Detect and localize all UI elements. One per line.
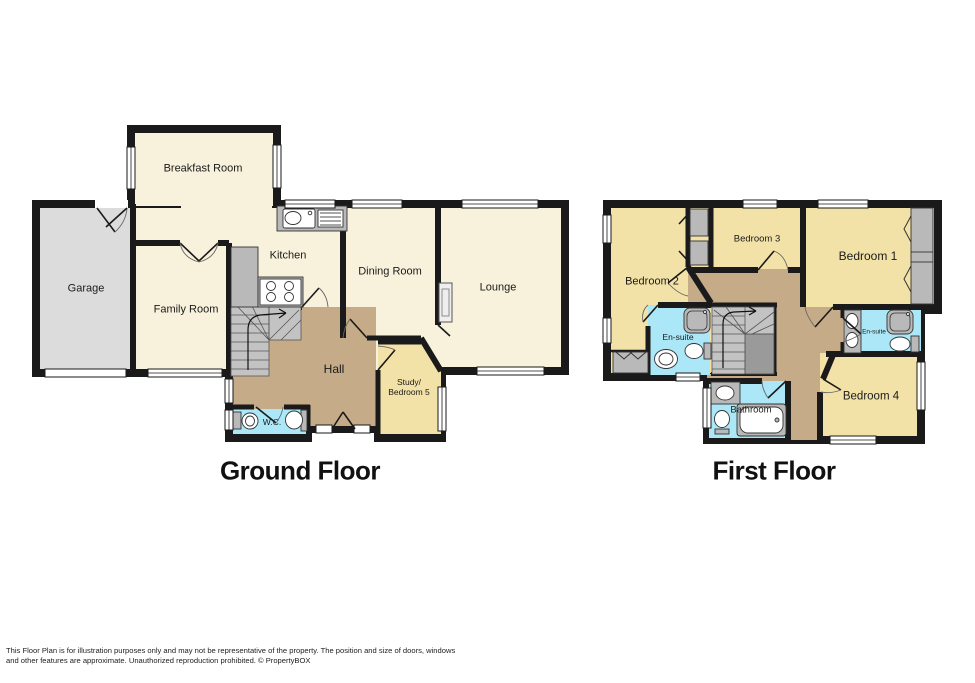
first-stairs <box>712 307 774 374</box>
room-label-garage: Garage <box>68 283 105 296</box>
room-label-hall: Hall <box>324 363 345 377</box>
floorplan-page: Breakfast Room Garage Kitchen Family Roo… <box>0 0 975 683</box>
room-label-bedroom2: Bedroom 2 <box>625 276 679 289</box>
ensuite-left-sink-icon <box>655 350 678 369</box>
garage-door <box>45 369 126 377</box>
bedroom2-wardrobe-icon <box>613 352 648 373</box>
bathroom-toilet-icon <box>715 411 730 435</box>
room-label-study-bedroom5: Study/ Bedroom 5 <box>388 378 430 398</box>
room-label-ensuite-left: En-suite <box>662 333 693 343</box>
room-label-dining-room: Dining Room <box>358 266 422 279</box>
ensuite-right-shower-icon <box>887 310 913 334</box>
room-label-breakfast-room: Breakfast Room <box>164 163 243 176</box>
first-floor-title: First Floor <box>712 456 835 487</box>
disclaimer-line-2: and other features are approximate. Unau… <box>6 656 310 666</box>
room-label-kitchen: Kitchen <box>270 250 307 263</box>
ensuite-left-shower-icon <box>684 308 710 333</box>
kitchen-counter-sink-icon <box>277 206 347 231</box>
bathroom-sink-icon <box>711 382 740 404</box>
disclaimer-line-1: This Floor Plan is for illustration purp… <box>6 646 455 656</box>
room-label-family-room: Family Room <box>154 304 219 317</box>
ensuite-left-toilet-icon <box>685 343 711 359</box>
room-label-wc: W.C. <box>263 418 281 428</box>
floorplan-canvas <box>0 0 975 683</box>
ensuite-right-toilet-icon <box>890 336 919 352</box>
fireplace-icon <box>439 283 452 322</box>
room-label-bedroom4: Bedroom 4 <box>843 390 899 403</box>
room-label-ensuite-right: En-suite <box>862 328 886 335</box>
ground-floor-title: Ground Floor <box>220 456 380 487</box>
wc-toilet-icon <box>233 412 258 429</box>
room-label-lounge: Lounge <box>480 282 517 295</box>
room-label-bathroom: Bathroom <box>730 406 771 417</box>
study-label-line2: Bedroom 5 <box>388 388 430 398</box>
room-label-bedroom1: Bedroom 1 <box>839 250 898 264</box>
room-label-bedroom3: Bedroom 3 <box>734 235 780 246</box>
